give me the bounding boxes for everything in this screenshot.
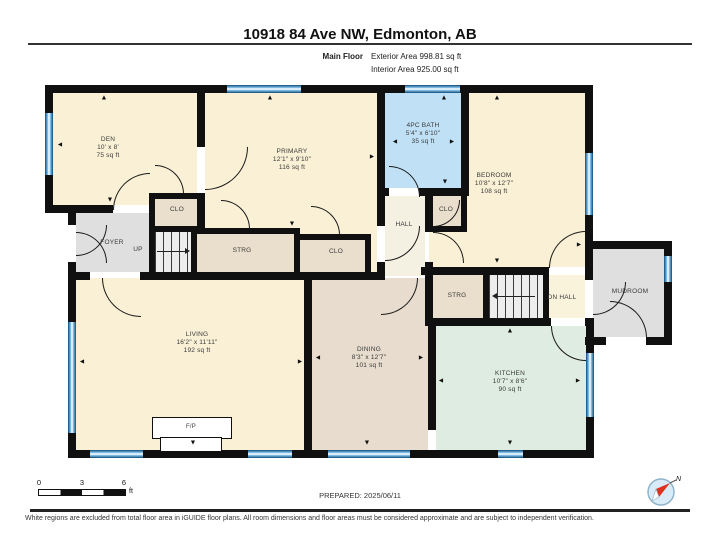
measure-arrow: ▲ xyxy=(101,95,108,102)
primary-label: PRIMARY 12'1" x 9'10" 116 sq ft xyxy=(273,148,311,172)
interior-area: Interior Area 925.00 sq ft xyxy=(371,65,459,74)
measure-arrow: ► xyxy=(575,378,582,385)
fireplace-label: F/P xyxy=(186,423,196,431)
measure-arrow: ► xyxy=(369,154,376,161)
bath-dims: 5'4" x 6'10" xyxy=(406,130,440,138)
wall-living-top-b xyxy=(140,272,385,280)
measure-arrow: ► xyxy=(576,242,583,249)
wall-dining-kitchen xyxy=(428,326,436,430)
wall-den-bottom xyxy=(45,205,113,213)
measure-arrow: ▼ xyxy=(494,258,501,265)
bedroom-name: BEDROOM xyxy=(475,172,513,180)
primary-name: PRIMARY xyxy=(273,148,311,156)
measure-arrow: ◄ xyxy=(392,139,399,146)
primary-area: 116 sq ft xyxy=(273,164,311,172)
window-bedroom-right xyxy=(585,153,593,215)
scale-num-3: 3 xyxy=(80,478,84,487)
measure-arrow: ▲ xyxy=(267,95,274,102)
wall-hall-left-a xyxy=(377,196,385,226)
bath-label: 4PC BATH 5'4" x 6'10" 35 sq ft xyxy=(406,122,440,146)
dining-area: 101 sq ft xyxy=(352,362,386,370)
measure-arrow: ▼ xyxy=(289,221,296,228)
strg-lower-label: STRG xyxy=(448,292,467,300)
hall-label: HALL xyxy=(395,221,412,229)
measure-arrow: ► xyxy=(449,139,456,146)
bath-name: 4PC BATH xyxy=(406,122,440,130)
wall-den-primary-a xyxy=(197,89,205,147)
wall-clo-mid-bottom xyxy=(425,226,467,232)
stairs-up-arrow-head xyxy=(185,248,190,254)
mudroom-label: MUDROOM xyxy=(612,288,648,296)
wall-kitchen-top-b xyxy=(585,318,594,326)
wall-top xyxy=(45,85,593,93)
dining-dims: 8'3" x 12'7" xyxy=(352,354,386,362)
window-kitchen-bottom xyxy=(498,450,523,458)
wall-bath-bedroom xyxy=(461,89,469,196)
window-den-left xyxy=(45,113,53,175)
foyer-label: FOYER xyxy=(100,239,123,247)
exterior-area: Exterior Area 998.81 sq ft xyxy=(371,52,461,61)
kitchen-label: KITCHEN 10'7" x 8'6" 90 sq ft xyxy=(493,370,527,394)
window-mudroom-right xyxy=(664,256,672,282)
dining-label: DINING 8'3" x 12'7" 101 sq ft xyxy=(352,346,386,370)
bath-area: 35 sq ft xyxy=(406,138,440,146)
kitchen-area: 90 sq ft xyxy=(493,386,527,394)
wall-kitchen-top-a xyxy=(425,318,551,326)
room-clo-mid2 xyxy=(300,240,365,272)
measure-arrow: ◄ xyxy=(438,378,445,385)
living-label: LIVING 16'2" x 11'11" 192 sq ft xyxy=(176,331,217,355)
living-dims: 16'2" x 11'11" xyxy=(176,339,217,347)
window-living-bottom-1 xyxy=(90,450,143,458)
den-dims: 10' x 8' xyxy=(97,144,120,152)
measure-arrow: ▼ xyxy=(107,197,114,204)
measure-arrow: ► xyxy=(418,355,425,362)
wall-clo-mid2-right xyxy=(365,234,371,272)
measure-arrow: ▼ xyxy=(507,440,514,447)
window-living-bottom-2 xyxy=(248,450,292,458)
primary-dims: 12'1" x 9'10" xyxy=(273,156,311,164)
stairs-dn-arrow-line xyxy=(497,296,535,297)
den-name: DEN xyxy=(97,136,120,144)
wall-mudroom-bottom-b xyxy=(646,337,672,345)
wall-living-dining xyxy=(304,272,312,450)
kitchen-name: KITCHEN xyxy=(493,370,527,378)
page-title: 10918 84 Ave NW, Edmonton, AB xyxy=(0,26,720,43)
bedroom-label: BEDROOM 10'8" x 12'7" 108 sq ft xyxy=(475,172,513,196)
kitchen-dims: 10'7" x 8'6" xyxy=(493,378,527,386)
wall-stairs-right xyxy=(191,228,197,276)
measure-arrow: ▼ xyxy=(190,440,197,447)
compass-north-label: N xyxy=(676,476,681,483)
footer-divider xyxy=(30,509,690,512)
measure-arrow: ► xyxy=(297,359,304,366)
dining-name: DINING xyxy=(352,346,386,354)
window-dining-bottom xyxy=(328,450,410,458)
clo-mid2-label: CLO xyxy=(329,248,343,256)
living-area: 192 sq ft xyxy=(176,347,217,355)
wall-primary-bath xyxy=(377,89,385,188)
stairs-up-arrow-line xyxy=(157,251,185,252)
wall-bath-bottom-a xyxy=(377,188,389,196)
measure-arrow: ◄ xyxy=(79,359,86,366)
measure-arrow: ▼ xyxy=(442,179,449,186)
measure-arrow: ▲ xyxy=(441,95,448,102)
measure-arrow: ◄ xyxy=(57,142,64,149)
wall-dnhall-right xyxy=(585,249,593,280)
measure-arrow: ▲ xyxy=(494,95,501,102)
scale-num-0: 0 xyxy=(37,478,41,487)
bedroom-dims: 10'8" x 12'7" xyxy=(475,180,513,188)
header-divider xyxy=(28,43,692,45)
wall-mudroom-top xyxy=(585,241,672,249)
dn-hall-label: DN HALL xyxy=(548,294,577,302)
measure-arrow: ◄ xyxy=(315,355,322,362)
scale-num-6: 6 xyxy=(122,478,126,487)
strg-upper-label: STRG xyxy=(233,247,252,255)
scale-bar xyxy=(38,489,126,496)
up-label: UP xyxy=(133,246,142,254)
clo-mid-label: CLO xyxy=(439,206,453,214)
living-name: LIVING xyxy=(176,331,217,339)
floorplan-page: 10918 84 Ave NW, Edmonton, AB Main Floor… xyxy=(0,0,720,556)
window-bath-top xyxy=(405,85,460,93)
clo-upper-label: CLO xyxy=(170,206,184,214)
bedroom-area: 108 sq ft xyxy=(475,188,513,196)
window-living-left xyxy=(68,322,76,433)
den-area: 75 sq ft xyxy=(97,152,120,160)
prepared-date: PREPARED: 2025/06/11 xyxy=(260,491,460,500)
window-kitchen-right xyxy=(586,353,594,417)
stairs-dn-arrow-head xyxy=(492,293,497,299)
wall-bath-bottom-b xyxy=(419,188,467,196)
measure-arrow: ▲ xyxy=(507,328,514,335)
scale-unit: ft xyxy=(129,488,133,495)
den-label: DEN 10' x 8' 75 sq ft xyxy=(97,136,120,160)
window-primary-top xyxy=(227,85,301,93)
measure-arrow: ▼ xyxy=(364,440,371,447)
floor-label: Main Floor xyxy=(278,52,363,61)
wall-living-top-a xyxy=(68,272,90,280)
disclaimer-text: White regions are excluded from total fl… xyxy=(25,515,705,522)
